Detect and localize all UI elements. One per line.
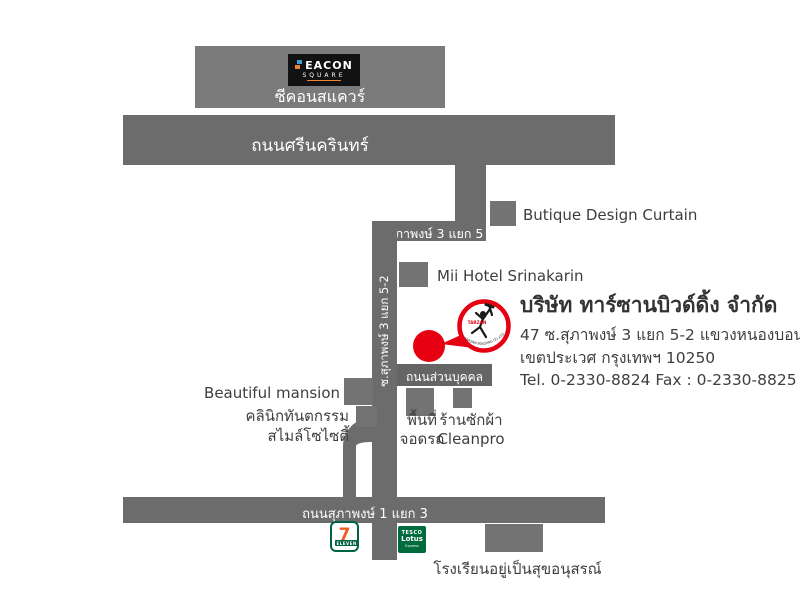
seven-eleven-band: ELEVEN: [335, 540, 358, 546]
seven-eleven-logo: 7 ELEVEN: [330, 521, 359, 552]
clinic-label-line2: สไมล์โซไซตี้: [268, 427, 349, 445]
butique-label: Butique Design Curtain: [523, 206, 697, 224]
private-road-label: ถนนส่วนบุคคล: [397, 368, 492, 387]
clinic-marker: [356, 406, 377, 427]
lotus-text: Lotus: [401, 536, 423, 544]
clinic-label: คลินิกทันตกรรม สไมล์โซไซตี้: [200, 406, 349, 446]
srinakarin-road-label: ถนนศรีนครินทร์: [230, 132, 390, 159]
seacon-logo-subtext: SQUARE: [301, 73, 348, 79]
laundry-label: ร้านซักผ้า Cleanpro: [436, 411, 506, 449]
seacon-square-label: ซีคอนสแควร์: [195, 85, 445, 110]
logo-tarzan-text: TARZAN: [468, 320, 487, 325]
company-info-block: บริษัท ทาร์ซานบิวด์ดิ้ง จำกัด 47 ซ.สุภาพ…: [520, 292, 790, 392]
map-canvas: EACON SQUARE ซีคอนสแควร์ ถนนศรีนครินทร์ …: [0, 0, 800, 600]
seacon-logo-text: EACON: [305, 60, 353, 71]
beautiful-mansion-label: Beautiful mansion: [180, 383, 340, 403]
beautiful-mansion-marker: [344, 378, 373, 405]
seacon-logo-underline: [307, 80, 341, 81]
butique-marker: [490, 201, 516, 226]
company-name: บริษัท ทาร์ซานบิวด์ดิ้ง จำกัด: [520, 292, 790, 319]
cleanpro-marker: [453, 388, 472, 408]
laundry-label-line2: Cleanpro: [437, 430, 504, 448]
seacon-square-logo: EACON SQUARE: [288, 54, 360, 86]
soi1-road-label: ถนนสุภาพงษ์ 1 แยก 3: [280, 503, 450, 524]
express-text: Express: [405, 544, 419, 548]
mii-hotel-marker: [399, 262, 428, 287]
mii-hotel-label: Mii Hotel Srinakarin: [437, 267, 584, 285]
company-address-line1: 47 ซ.สุภาพงษ์ 3 แยก 5-2 แขวงหนองบอน: [520, 324, 790, 347]
soi52-road-label: ซ.สุภาพงษ์ 3 แยก 5-2: [376, 261, 394, 401]
tesco-lotus-logo: TESCO Lotus Express: [398, 526, 426, 553]
school-label: โรงเรียนอยู่เป็นสุขอนุสรณ์: [430, 557, 605, 581]
laundry-label-line1: ร้านซักผ้า: [439, 411, 502, 429]
seacon-s-icon: [295, 60, 303, 70]
clinic-label-line1: คลินิกทันตกรรม: [245, 407, 349, 425]
parking-label-line1: พื้นที่: [407, 411, 437, 429]
school-marker: [485, 524, 543, 552]
tarzan-logo: TARZAN TARZAN BUILDING CO.,LTD.: [437, 293, 517, 365]
company-contact: Tel. 0-2330-8824 Fax : 0-2330-8825: [520, 369, 790, 392]
company-address-line2: เขตประเวศ กรุงเทพฯ 10250: [520, 347, 790, 370]
